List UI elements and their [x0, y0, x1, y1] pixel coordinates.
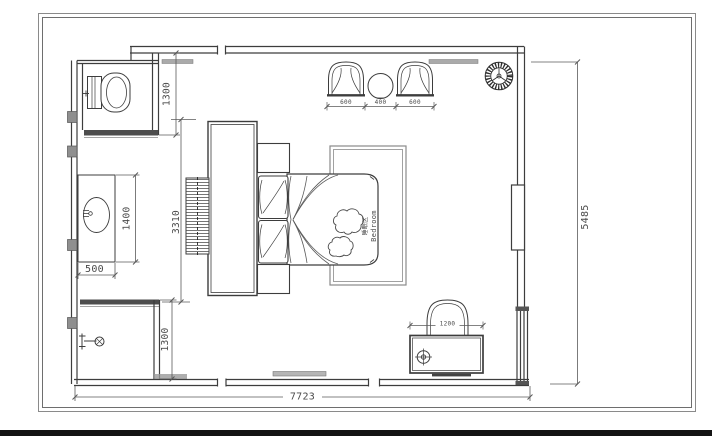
threshold-top-left [162, 60, 193, 64]
floor-plan-drawing: 睡眠区 Bedroom [0, 0, 722, 438]
toilet [83, 73, 130, 112]
zone-label-cn: 睡眠区 [361, 217, 369, 236]
dresser-hatched [186, 177, 209, 255]
dim-plan-total-depth: 5485 [580, 204, 591, 229]
dim-vanity-depth: 500 [85, 264, 104, 275]
threshold-bottom [273, 372, 326, 377]
shower-head-icon [79, 334, 104, 350]
tea-table [368, 74, 393, 99]
wardrobe [208, 122, 257, 296]
dim-plan-total-width: 7723 [290, 392, 315, 403]
dim-shower-room-depth: 1300 [160, 327, 171, 351]
armchairs-table [327, 62, 434, 99]
zone-label-en: Bedroom [370, 210, 378, 242]
bed: 睡眠区 Bedroom [287, 174, 378, 265]
armchair-left [327, 62, 365, 96]
armchair-right [396, 62, 434, 96]
dim-desk-width: 1200 [440, 321, 456, 328]
dim-toilet-room-depth: 1300 [162, 82, 173, 106]
dim-armchair-left: 600 [340, 99, 352, 106]
dim-armchair-right: 600 [409, 99, 421, 106]
vanity-sink [78, 175, 115, 262]
dim-vanity-length: 1400 [122, 206, 133, 230]
dim-tea-table: 400 [375, 99, 387, 106]
potted-plant-icon [485, 62, 513, 90]
threshold-top-right [429, 60, 478, 64]
desk [410, 336, 483, 377]
desk-area [410, 300, 483, 376]
floor-plan-sheet: 睡眠区 Bedroom [0, 0, 722, 438]
pillows [259, 176, 289, 263]
bottom-rule [0, 430, 712, 436]
dim-wardrobe-run: 3310 [171, 210, 182, 234]
